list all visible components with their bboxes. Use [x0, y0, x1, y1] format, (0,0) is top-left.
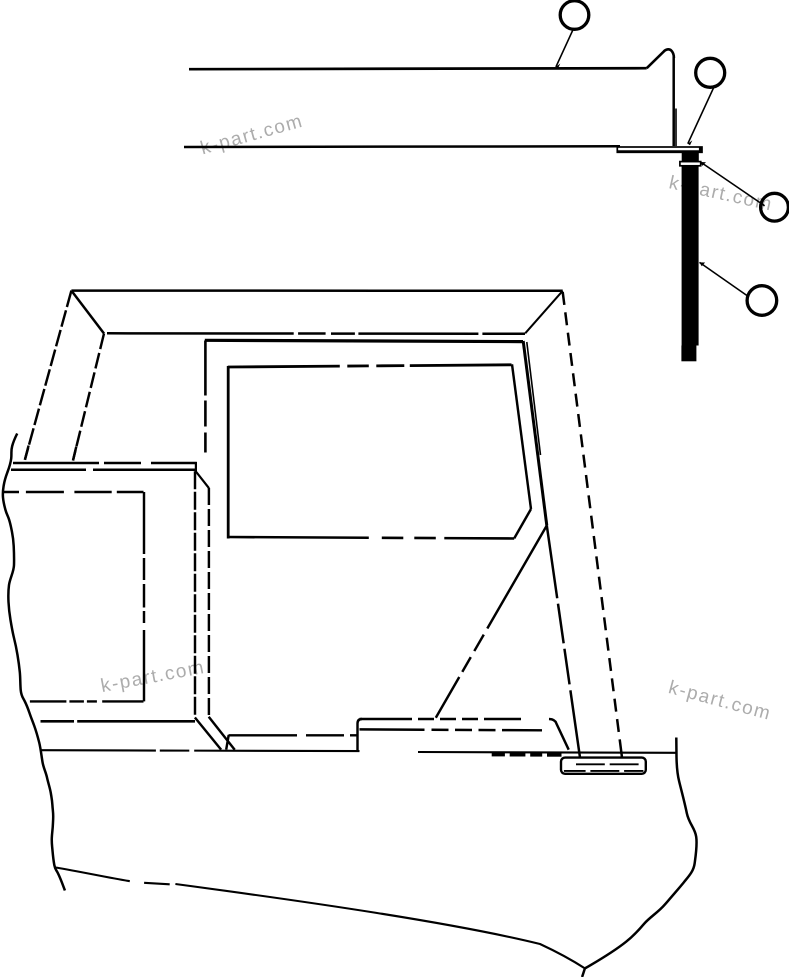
svg-text:k-part.com: k-part.com	[99, 657, 207, 697]
svg-text:k-part.com: k-part.com	[666, 677, 774, 725]
svg-text:k-part.com: k-part.com	[198, 111, 306, 160]
